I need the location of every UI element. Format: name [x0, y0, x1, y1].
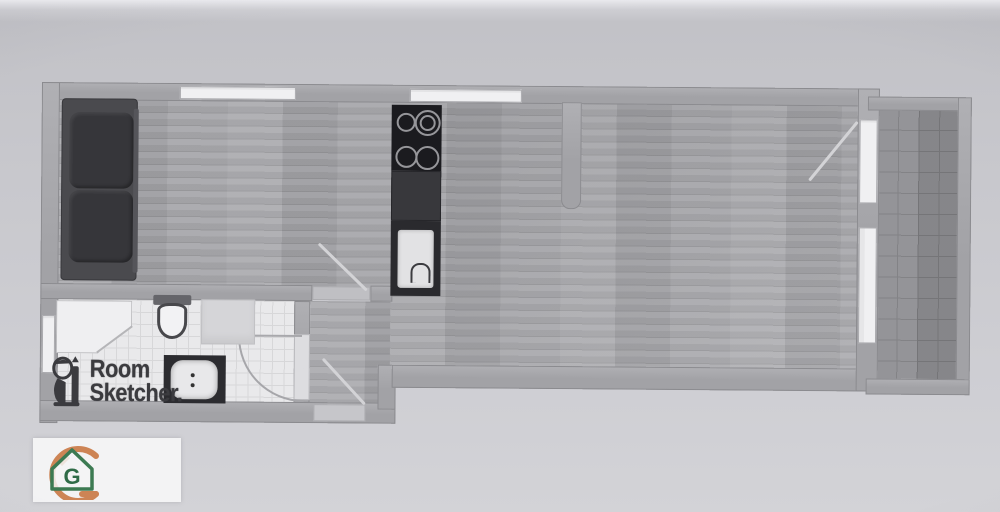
cooktop	[391, 105, 442, 171]
emblem-letter: G	[63, 464, 80, 489]
wall-stub-doorway	[370, 286, 392, 302]
balcony-floor	[876, 109, 960, 382]
kitchen-counter	[391, 171, 441, 221]
floorplan-photo: Room Sketcher. G LIGORIĆ NEKRETNINE	[0, 0, 1000, 512]
drain-dot	[191, 373, 195, 377]
kitchen-window	[410, 89, 522, 103]
sofa	[60, 98, 137, 281]
watermark-line2: Sketcher.	[89, 380, 182, 404]
sofa-cushion	[69, 190, 134, 263]
floorplan: Room Sketcher.	[0, 0, 1000, 512]
balcony-wall-right	[956, 97, 972, 393]
agency-logo-card: G LIGORIĆ NEKRETNINE	[33, 438, 181, 502]
burner	[415, 110, 441, 136]
balcony-wall-bottom	[866, 378, 970, 395]
burner	[415, 146, 439, 170]
burner	[395, 146, 417, 168]
roomsketcher-mascot-icon	[49, 354, 87, 408]
faucet	[410, 263, 430, 283]
agency-house-logo-icon: G	[38, 442, 110, 500]
burner	[397, 113, 416, 132]
balcony-window	[858, 227, 877, 343]
sofa-cushion	[69, 112, 134, 189]
balcony-door-opening	[859, 119, 878, 203]
roomsketcher-watermark: Room Sketcher.	[89, 356, 182, 404]
balcony-wall-top	[868, 96, 972, 111]
drain-dot	[191, 383, 195, 387]
main-room-floor	[390, 101, 860, 371]
wall-partition-stub	[561, 102, 582, 209]
toilet	[157, 303, 187, 339]
sink-basin	[397, 230, 433, 288]
entry-door-opening	[313, 404, 365, 421]
shower-tray	[201, 299, 255, 344]
wall-bottom-main	[392, 365, 878, 392]
living-room-window	[180, 86, 296, 100]
kitchen-sink	[390, 221, 441, 296]
